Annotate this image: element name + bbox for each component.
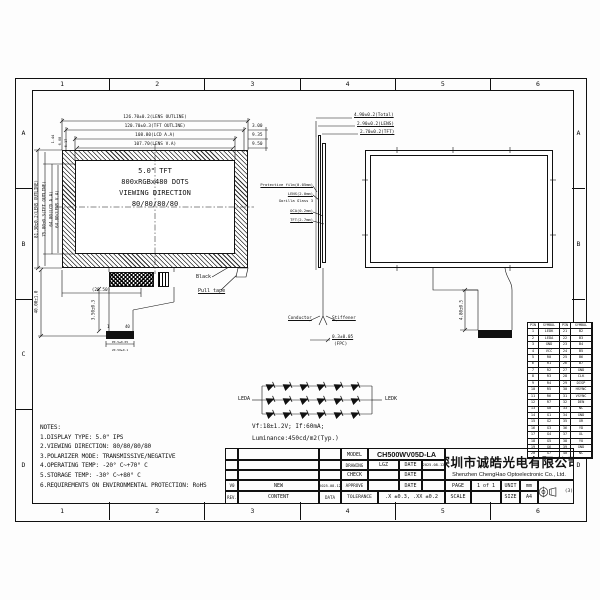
drawing-linework: [0, 0, 600, 600]
drawing-sheet: 123456 123456 ABCD ABCD 5.0" TFT 800xRGB…: [0, 0, 600, 600]
